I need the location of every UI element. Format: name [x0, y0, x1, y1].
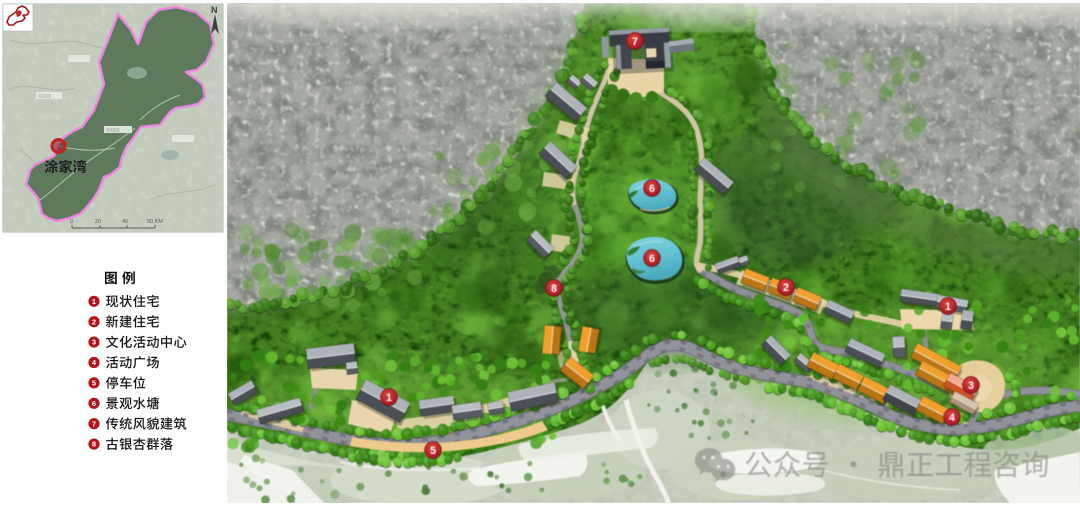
- svg-text:2: 2: [783, 282, 789, 294]
- svg-text:4: 4: [949, 412, 955, 424]
- svg-text:3: 3: [92, 338, 96, 347]
- svg-text:3: 3: [968, 380, 974, 392]
- svg-text:20: 20: [95, 219, 101, 225]
- svg-text:40: 40: [122, 219, 128, 225]
- svg-text:1: 1: [92, 297, 96, 306]
- svg-text:6: 6: [92, 399, 96, 408]
- svg-text:5: 5: [92, 379, 96, 388]
- svg-text:7: 7: [92, 419, 96, 428]
- svg-text:6: 6: [649, 253, 655, 265]
- svg-text:5: 5: [430, 445, 436, 457]
- svg-text:6: 6: [649, 183, 655, 195]
- svg-text:2: 2: [92, 317, 96, 326]
- svg-text:80 KM: 80 KM: [147, 219, 163, 225]
- svg-text:7: 7: [632, 36, 638, 48]
- svg-text:1: 1: [386, 392, 392, 404]
- svg-text:8: 8: [92, 440, 96, 449]
- svg-text:N: N: [211, 5, 218, 15]
- svg-text:0: 0: [70, 219, 73, 225]
- svg-text:1: 1: [945, 301, 951, 313]
- svg-text:XXXX: XXXX: [38, 94, 52, 100]
- svg-text:XXXX: XXXX: [106, 128, 120, 134]
- svg-text:8: 8: [551, 283, 557, 295]
